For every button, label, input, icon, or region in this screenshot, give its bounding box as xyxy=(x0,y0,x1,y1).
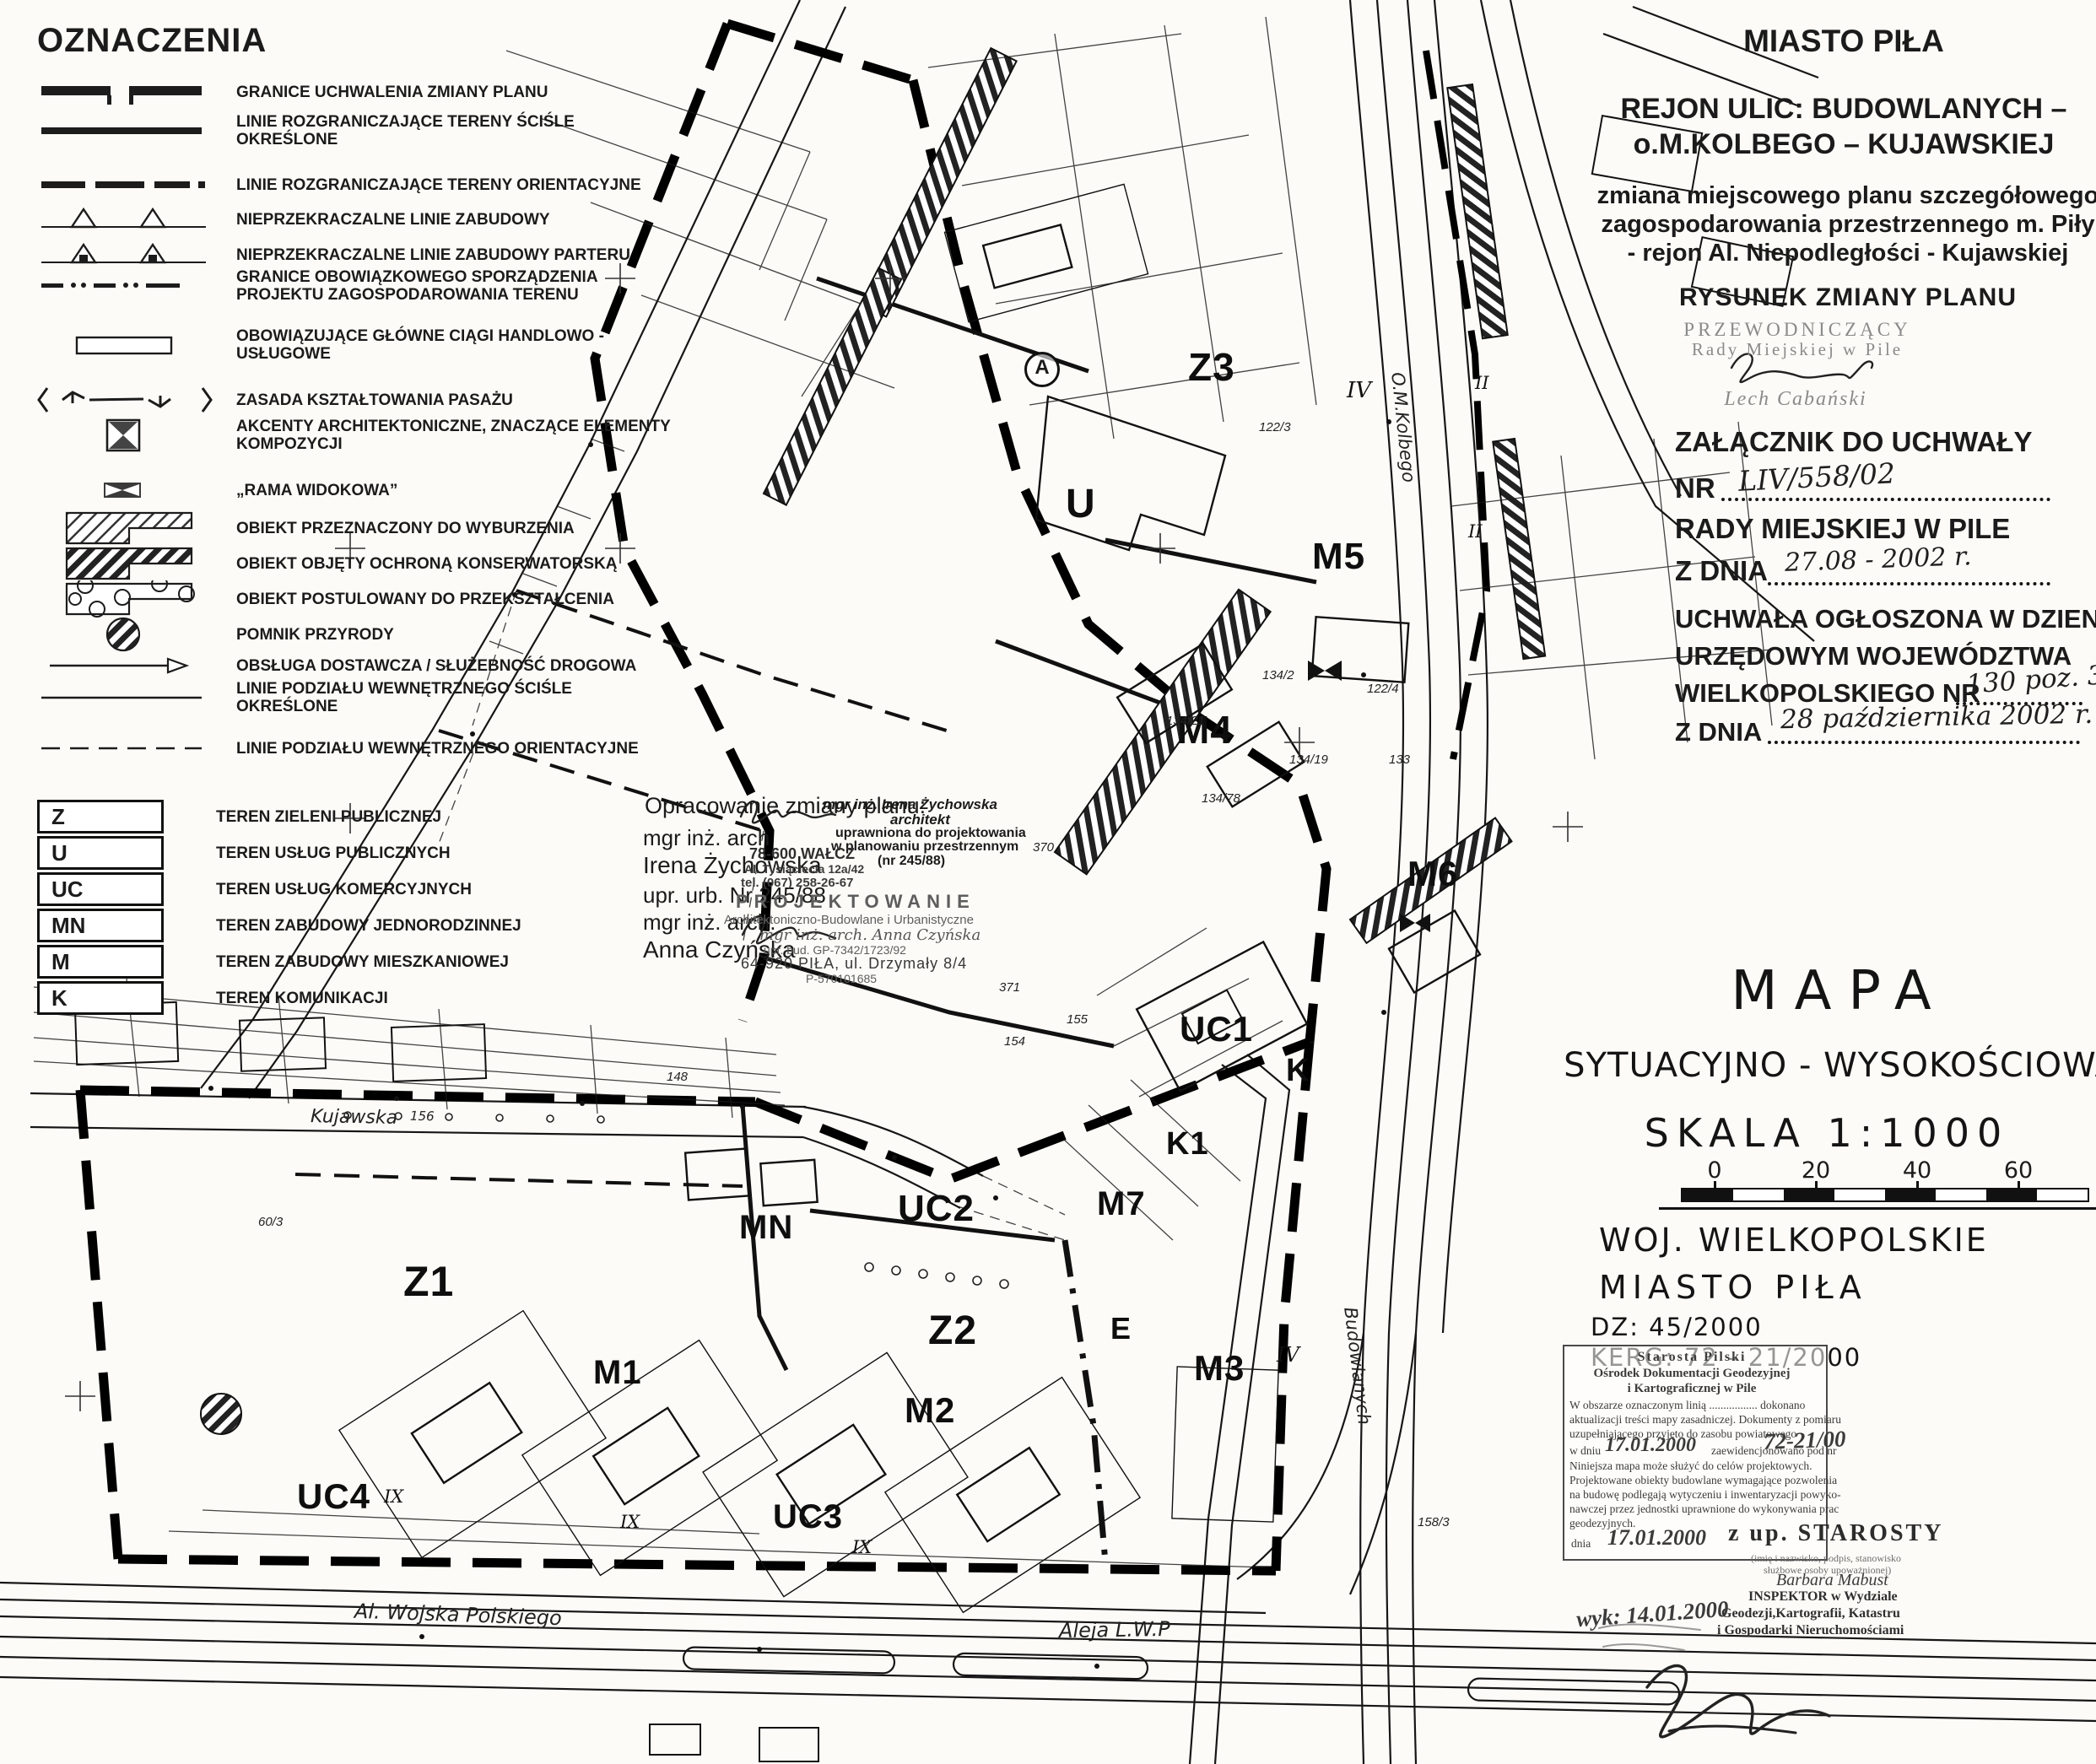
attachment-line2: RADY MIEJSKIEJ W PILE xyxy=(1675,513,2010,545)
scanned-plan-sheet: { "legend": { "title": "OZNACZENIA", "it… xyxy=(0,0,2096,1764)
zone-label-k: K xyxy=(1286,1053,1310,1089)
scale-bar-rail xyxy=(1659,1207,2096,1210)
passage-icon xyxy=(37,383,214,417)
attachment-nr-label: NR xyxy=(1675,472,1715,504)
stamp-body8: nawczej przez jednostki uprawnione do wy… xyxy=(1569,1502,1839,1516)
legend-item-label: GRANICE OBOWIĄZKOWEGO SPORZĄDZENIA PROJE… xyxy=(236,268,675,304)
legend-item-label: OBSŁUGA DOSTAWCZA / SŁUŻEBNOŚĆ DROGOWA xyxy=(236,657,675,675)
zone-code-box: U xyxy=(37,836,164,870)
sheet-subtitle-line1: zmiana miejscowego planu szczegółowego xyxy=(1597,182,2096,210)
scale-tick-20: 20 xyxy=(1802,1157,1830,1184)
heritage-icon xyxy=(37,545,214,582)
stamp-body2: aktualizacji treści mapy zasadniczej. Do… xyxy=(1569,1413,1841,1427)
legend-item-label: LINIE PODZIAŁU WEWNĘTRZNEGO ORIENTACYJNE xyxy=(236,740,675,758)
zone-label: TEREN ZIELENI PUBLICZNEJ xyxy=(216,808,655,826)
walcz-stamp-line3: tel. (067) 258-26-67 xyxy=(741,876,853,890)
numeral-ix-1: IX xyxy=(384,1486,403,1507)
dash-dot-line-icon xyxy=(37,272,214,300)
legend-item-label: AKCENTY ARCHITEKTONICZNE, ZNACZĄCE ELEME… xyxy=(236,418,675,453)
stamp-title2: Ośrodek Dokumentacji Geodezyjnej xyxy=(1593,1367,1790,1381)
zone-label-m2: M2 xyxy=(905,1390,955,1431)
stamp-zup: z up. STAROSTY xyxy=(1728,1520,1943,1547)
accent-icon xyxy=(37,417,214,454)
street-label-kujawska: Kujawska xyxy=(311,1106,397,1129)
walcz-stamp-line1: 78-600 WAŁCZ xyxy=(749,845,855,863)
legend-title: OZNACZENIA xyxy=(37,22,267,60)
legend-item: LINIE PODZIAŁU WEWNĘTRZNEGO ŚCIŚLE OKREŚ… xyxy=(37,680,675,715)
legend-item-label: NIEPRZEKRACZALNE LINIE ZABUDOWY xyxy=(236,211,675,229)
projekt-stamp-line2: Architektoniczno-Budowlane i Urbanistycz… xyxy=(724,913,974,927)
stamp-reg-nr: 72-21/00 xyxy=(1763,1426,1846,1454)
stamp-title1: Starosta Pilski xyxy=(1638,1350,1747,1365)
zone-label-uc1: UC1 xyxy=(1180,1009,1253,1049)
zone-code-box: UC xyxy=(37,872,164,906)
demolition-icon xyxy=(37,510,214,547)
accent-marker-a: A xyxy=(1024,352,1060,387)
map-province: WOJ. WIELKOPOLSKIE xyxy=(1599,1222,1989,1259)
scale-tick-0: 0 xyxy=(1707,1157,1721,1184)
zone-label-m5: M5 xyxy=(1312,536,1365,578)
transformation-icon xyxy=(37,580,214,618)
map-city: MIASTO PIŁA xyxy=(1599,1269,1867,1306)
stamp-role3: i Gospodarki Nieruchomościami xyxy=(1717,1623,1904,1638)
architect-stamp-line4: w planowaniu przestrzennym xyxy=(831,839,1018,855)
announcement-line1: UCHWAŁA OGŁOSZONA W DZIENNIKU xyxy=(1675,604,2096,634)
legend-item-label: POMNIK PRZYRODY xyxy=(236,626,675,644)
map-title-line1: MAPA xyxy=(1731,960,1947,1022)
legend-zone-row: MN TEREN ZABUDOWY JEDNORODZINNEJ xyxy=(37,909,655,942)
parcel-number: 133 xyxy=(1389,753,1410,767)
zone-label: TEREN ZABUDOWY JEDNORODZINNEJ xyxy=(216,917,655,935)
legend-item-label: LINIE PODZIAŁU WEWNĘTRZNEGO ŚCIŚLE OKREŚ… xyxy=(236,680,675,715)
legend-item: LINIE PODZIAŁU WEWNĘTRZNEGO ORIENTACYJNE xyxy=(37,734,675,763)
attachment-title: ZAŁĄCZNIK DO UCHWAŁY xyxy=(1675,426,2032,458)
legend-item-label: GRANICE UCHWALENIA ZMIANY PLANU xyxy=(236,84,675,101)
zone-label: TEREN KOMUNIKACJI xyxy=(216,990,655,1007)
walcz-stamp-line2: Al. Tysiąclecia 12a/42 xyxy=(744,862,864,876)
zone-label-u: U xyxy=(1066,481,1096,527)
stamp-date-label: dnia xyxy=(1571,1537,1591,1551)
legend-item-label: OBOWIĄZUJĄCE GŁÓWNE CIĄGI HANDLOWO - USŁ… xyxy=(236,327,675,363)
sheet-subtitle-line3: - rejon Al. Niepodległości - Kujawskiej xyxy=(1628,240,2069,267)
legend-item: GRANICE UCHWALENIA ZMIANY PLANU xyxy=(37,78,675,106)
street-number-156: 156 xyxy=(410,1109,435,1124)
legend-zone-row: M TEREN ZABUDOWY MIESZKANIOWEJ xyxy=(37,945,655,979)
numeral-ix-3: IX xyxy=(852,1537,872,1557)
zone-label-m1: M1 xyxy=(593,1354,642,1392)
legend-item: LINIE ROZGRANICZAJĄCE TERENY ORIENTACYJN… xyxy=(37,170,675,199)
legend-zone-row: Z TEREN ZIELENI PUBLICZNEJ xyxy=(37,800,655,833)
zone-code-box: K xyxy=(37,981,164,1015)
zone-label-m3: M3 xyxy=(1194,1348,1245,1389)
parcel-number: 134/21 xyxy=(1166,714,1205,728)
zone-label: TEREN USŁUG KOMERCYJNYCH xyxy=(216,881,655,898)
legend-item: OBIEKT PRZEZNACZONY DO WYBURZENIA xyxy=(37,510,675,547)
legend-item-label: OBIEKT PRZEZNACZONY DO WYBURZENIA xyxy=(236,520,675,537)
zone-label-uc2: UC2 xyxy=(898,1188,975,1230)
legend-item-label: OBIEKT POSTULOWANY DO PRZEKSZTAŁCENIA xyxy=(236,591,675,608)
parcel-number: 371 xyxy=(999,980,1020,995)
parcel-number: 155 xyxy=(1067,1012,1088,1027)
thick-line-icon xyxy=(37,116,214,145)
stamp-body6: Projektowane obiekty budowlane wymagając… xyxy=(1569,1474,1837,1487)
stamp-body4a: w dniu xyxy=(1569,1444,1601,1458)
legend-item: OBIEKT OBJĘTY OCHRONĄ KONSERWATORSKĄ xyxy=(37,545,675,582)
zone-label-mn: MN xyxy=(739,1209,793,1247)
parcel-number: 134/78 xyxy=(1202,791,1240,806)
chairman-role-line2: Rady Miejskiej w Pile xyxy=(1692,339,1903,360)
announcement-date-label: Z DNIA xyxy=(1675,717,1762,747)
stamp-title3: i Kartograficznej w Pile xyxy=(1628,1382,1757,1396)
zone-label-uc4: UC4 xyxy=(297,1476,370,1517)
chairman-name: Lech Cabański xyxy=(1724,388,1866,411)
legend-item: OBSŁUGA DOSTAWCZA / SŁUŻEBNOŚĆ DROGOWA xyxy=(37,651,675,680)
zone-label: TEREN ZABUDOWY MIESZKANIOWEJ xyxy=(216,953,655,971)
numeral-iv-1: IV xyxy=(1347,378,1371,403)
scale-bar xyxy=(1681,1188,2089,1202)
sheet-region-line1: REJON ULIC: BUDOWLANYCH – xyxy=(1621,93,2067,126)
parcel-number: 60/3 xyxy=(258,1215,283,1229)
zone-label: TEREN USŁUG PUBLICZNYCH xyxy=(216,844,655,862)
stamp-body1: W obszarze oznaczonym linią ............… xyxy=(1569,1399,1805,1412)
sheet-subtitle-line2: zagospodarowania przestrzennego m. Piły xyxy=(1602,211,2095,239)
stamp-person: Barbara Mabust xyxy=(1776,1571,1888,1590)
legend-item: ZASADA KSZTAŁTOWANIA PASAŻU xyxy=(37,383,675,417)
architect-stamp-line5: (nr 245/88) xyxy=(878,854,945,869)
legend-zone-row: U TEREN USŁUG PUBLICZNYCH xyxy=(37,836,655,870)
projekt-stamp-line5: 64-920 PIŁA, ul. Drzymały 8/4 xyxy=(741,955,967,973)
legend-item: „RAMA WIDOKOWA” xyxy=(37,477,675,503)
legend-zone-row: K TEREN KOMUNIKACJI xyxy=(37,981,655,1015)
map-dz: DZ: 45/2000 xyxy=(1591,1313,1763,1341)
sheet-title-city: MIASTO PIŁA xyxy=(1743,24,1944,59)
street-label-aleja-lwp: Aleja L.W.P xyxy=(1059,1617,1170,1643)
legend-item-label: OBIEKT OBJĘTY OCHRONĄ KONSERWATORSKĄ xyxy=(236,555,675,573)
stamp-caption1: (imię i nazwisko, podpis, stanowisko xyxy=(1751,1552,1901,1565)
internal-division-dashed-icon xyxy=(37,734,214,763)
attachment-date-label: Z DNIA xyxy=(1675,555,1768,587)
retail-strip-icon xyxy=(37,331,214,359)
drawing-title: RYSUNEK ZMIANY PLANU xyxy=(1679,283,2017,312)
zone-label-m7: M7 xyxy=(1097,1185,1146,1223)
stamp-role1: INSPEKTOR w Wydziale xyxy=(1748,1589,1898,1605)
legend-item-label: LINIE ROZGRANICZAJĄCE TERENY ORIENTACYJN… xyxy=(236,176,675,194)
parcel-number: 122/3 xyxy=(1259,420,1291,434)
dotted-rule xyxy=(1768,582,2050,585)
zone-code-box: Z xyxy=(37,800,164,833)
legend-item-label: LINIE ROZGRANICZAJĄCE TERENY ŚCIŚLE OKRE… xyxy=(236,113,675,148)
parcel-number: 370 xyxy=(1033,840,1054,855)
architect-stamp-line1: mgr inż. Irena Żychowska xyxy=(823,796,997,813)
stamp-reg-date: 17.01.2000 xyxy=(1605,1434,1696,1457)
legend-item: LINIE ROZGRANICZAJĄCE TERENY ŚCIŚLE OKRE… xyxy=(37,113,675,148)
zone-label-z2: Z2 xyxy=(928,1308,977,1354)
parcel-number: 122/4 xyxy=(1367,682,1399,696)
legend-item: NIEPRZEKRACZALNE LINIE ZABUDOWY xyxy=(37,204,675,235)
stamp-body7: na budowę podlegają wytyczeniu i inwenta… xyxy=(1569,1488,1841,1502)
parcel-number: 154 xyxy=(1004,1034,1025,1049)
numeral-ii-1: II xyxy=(1475,373,1489,393)
parcel-number: 158/3 xyxy=(1418,1515,1450,1529)
building-line-ground-icon xyxy=(37,240,214,270)
zone-code-box: M xyxy=(37,945,164,979)
numeral-ix-2: IX xyxy=(620,1512,640,1532)
nature-monument-icon xyxy=(37,616,214,653)
delivery-access-icon xyxy=(37,651,214,680)
legend-item: OBOWIĄZUJĄCE GŁÓWNE CIĄGI HANDLOWO - USŁ… xyxy=(37,327,675,363)
zone-label-uc3: UC3 xyxy=(773,1498,843,1536)
stamp-body5: Niniejsza mapa może służyć do celów proj… xyxy=(1569,1459,1812,1473)
parcel-number: 134/2 xyxy=(1262,668,1294,682)
scale-tick-40: 40 xyxy=(1903,1157,1931,1184)
zone-code-box: MN xyxy=(37,909,164,942)
map-scale: SKALA 1:1000 xyxy=(1645,1110,2010,1156)
map-title-line2: SYTUACYJNO - WYSOKOŚCIOWA xyxy=(1564,1046,2096,1085)
zone-label-z1: Z1 xyxy=(403,1257,454,1306)
zone-label-e: E xyxy=(1110,1311,1132,1346)
zone-label-m6: M6 xyxy=(1407,854,1458,894)
chairman-role-line1: PRZEWODNICZĄCY xyxy=(1683,319,1910,341)
stamp-role2: Geodezji,Kartografii, Katastru xyxy=(1721,1606,1900,1621)
projekt-stamp-line1: PROJEKTOWANIE xyxy=(736,891,975,913)
legend-zone-row: UC TEREN USŁUG KOMERCYJNYCH xyxy=(37,872,655,906)
zone-label-z3: Z3 xyxy=(1188,344,1235,390)
numeral-iv-2: IV xyxy=(1277,1343,1299,1367)
legend-item-label: „RAMA WIDOKOWA” xyxy=(236,482,675,499)
sheet-region-line2: o.M.KOLBEGO – KUJAWSKIEJ xyxy=(1634,128,2055,161)
dotted-rule xyxy=(1768,741,2080,744)
projekt-stamp-line6: P-570101685 xyxy=(806,972,877,985)
legend-item-label: ZASADA KSZTAŁTOWANIA PASAŻU xyxy=(236,391,675,409)
projekt-stamp-line3: mgr inż. arch. Anna Czyńska xyxy=(759,926,980,944)
scale-tick-60: 60 xyxy=(2004,1157,2033,1184)
internal-division-line-icon xyxy=(37,683,214,712)
legend-item: NIEPRZEKRACZALNE LINIE ZABUDOWY PARTERU xyxy=(37,240,675,270)
legend-item: POMNIK PRZYRODY xyxy=(37,616,675,653)
view-frame-icon xyxy=(37,477,214,503)
legend-item: GRANICE OBOWIĄZKOWEGO SPORZĄDZENIA PROJE… xyxy=(37,268,675,304)
numeral-ii-2: II xyxy=(1468,521,1483,542)
zone-label-k1: K1 xyxy=(1166,1126,1209,1163)
parcel-number: 148 xyxy=(667,1070,688,1084)
boundary-bar-icon xyxy=(37,78,214,106)
thick-dashed-line-icon xyxy=(37,170,214,199)
legend-item: OBIEKT POSTULOWANY DO PRZEKSZTAŁCENIA xyxy=(37,580,675,618)
stamp-date-value: 17.01.2000 xyxy=(1607,1525,1706,1551)
parcel-number: 134/19 xyxy=(1289,753,1328,767)
building-line-icon xyxy=(37,204,214,235)
legend-item-label: NIEPRZEKRACZALNE LINIE ZABUDOWY PARTERU xyxy=(236,246,675,264)
legend-item: AKCENTY ARCHITEKTONICZNE, ZNACZĄCE ELEME… xyxy=(37,417,675,454)
announcement-date-value: 28 października 2002 r. xyxy=(1780,699,2093,735)
dotted-rule xyxy=(1721,498,2050,501)
